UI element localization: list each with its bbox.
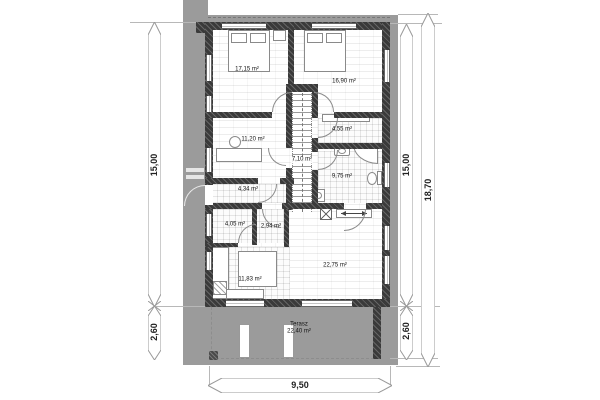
window-living-right-upper: [384, 226, 390, 250]
dim-label-right-main: 15,00: [401, 153, 411, 178]
room-label-living: 22,75 m²: [323, 263, 347, 270]
eaves-dashed-line: [208, 17, 390, 18]
window-living-right-lower: [384, 256, 390, 284]
room-label-wardrobe: 4,55 m²: [332, 127, 352, 134]
window-bedroom2-top: [312, 23, 356, 29]
dim-label-left-lower: 2,60: [149, 322, 159, 342]
window-bedroom1-left: [206, 55, 212, 81]
toilet-bowl: [367, 172, 377, 185]
terrace-area-label: 22,40 m²: [287, 329, 311, 336]
wall-bedroom-divider: [288, 22, 294, 84]
room-label-bedroom2: 16,90 m²: [332, 79, 356, 86]
entrance-step-1: [186, 168, 204, 172]
wall-office-bottom-right: [280, 178, 294, 184]
ext-line-top-left: [130, 22, 205, 23]
entrance-step-2: [186, 175, 204, 179]
window-pantry-left: [206, 214, 212, 236]
dimension-junction-left-icon: [148, 301, 161, 311]
room-label-pantry: 4,05 m²: [225, 222, 245, 229]
ext-line-mid-left: [156, 306, 205, 307]
desk: [216, 148, 262, 162]
dim-label-left-main: 15,00: [149, 153, 159, 178]
wall-bedroom1-bottom: [205, 112, 272, 118]
nightstand: [273, 30, 286, 41]
dim-label-right-lower: 2,60: [401, 321, 411, 341]
room-label-bathroom: 9,75 m²: [332, 174, 352, 181]
terrace-pillar-1: [239, 324, 250, 358]
window-bedroom1-top: [222, 23, 266, 29]
window-office-left-upper: [206, 96, 212, 112]
room-label-wc: 2,94 m²: [261, 224, 281, 231]
wall-mid-center: [282, 203, 344, 209]
bed-2-pillow-left: [307, 33, 323, 43]
wall-wc-right: [284, 209, 289, 247]
staircase: [292, 88, 312, 212]
room-label-kitchen: 11,83 m²: [238, 277, 261, 284]
kitchen-counter-bottom: [226, 289, 264, 299]
wall-wardrobe-bottom: [312, 143, 382, 149]
terrace-footing: [209, 351, 218, 360]
chimney: [183, 0, 208, 24]
dim-label-bottom: 9,50: [290, 380, 310, 390]
wall-terrace-stub: [373, 307, 381, 359]
wall-office-bottom-left: [205, 178, 258, 184]
wall-pantry-bottom: [205, 243, 238, 247]
entrance-opening: [205, 185, 213, 205]
terrace-name-label: Terasz: [290, 322, 308, 329]
wall-bedroom2-bottom: [334, 112, 382, 118]
terrace-sliding-door: [302, 300, 352, 307]
window-bedroom2-right: [384, 50, 390, 82]
room-label-hall: 4,34 m²: [238, 187, 258, 194]
room-label-bedroom1: 17,15 m²: [235, 67, 259, 74]
room-label-office: 11,20 m²: [241, 137, 264, 144]
window-bathroom-right: [384, 163, 390, 187]
desk-chair: [229, 136, 241, 148]
bed-1-pillow-left: [231, 33, 247, 43]
room-label-stair-hall: 7,10 m²: [291, 157, 313, 164]
floorplan-canvas: 17,15 m² 16,90 m² 11,20 m² 4,55 m² 7,10 …: [0, 0, 600, 400]
bed-1-pillow-right: [250, 33, 266, 43]
staircase-centerline: [302, 88, 303, 212]
dim-label-right-total: 18,70: [423, 178, 433, 203]
kitchen-sink: [213, 281, 227, 295]
wall-bath-left-lower: [312, 170, 318, 205]
dimension-junction-right-icon: [400, 301, 413, 311]
equipment-box-icon: [320, 208, 332, 220]
window-office-left-lower: [206, 148, 212, 172]
bed-2-pillow-right: [326, 33, 342, 43]
window-kitchen-bottom: [226, 300, 264, 307]
wall-mid-right: [366, 203, 382, 209]
window-kitchen-left: [206, 252, 212, 270]
